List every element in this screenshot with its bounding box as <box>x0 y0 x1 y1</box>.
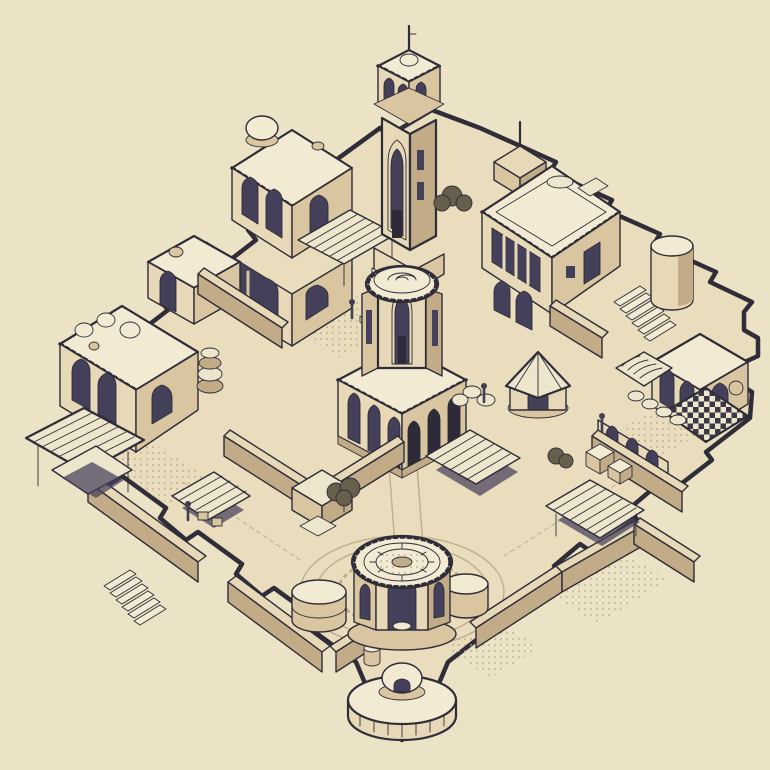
goods <box>212 518 222 526</box>
base-arch <box>428 409 440 454</box>
side-arch <box>360 584 370 620</box>
goods <box>198 512 208 520</box>
crown-dome <box>400 54 418 66</box>
slit-window <box>417 182 424 200</box>
side-arch <box>434 582 444 618</box>
fountain-pavilion <box>348 536 456 650</box>
isometric-town-map <box>0 0 770 770</box>
dome-door <box>394 679 410 692</box>
dome <box>246 116 278 140</box>
tower-door <box>392 210 402 238</box>
basin <box>393 622 411 630</box>
pavilion-door <box>398 336 406 364</box>
roof-dome <box>97 313 115 327</box>
bedroll <box>547 176 573 188</box>
base-arch <box>408 421 420 466</box>
slit-window <box>417 150 424 170</box>
roof-dome <box>75 323 93 337</box>
tree <box>434 195 450 211</box>
tree <box>456 195 472 211</box>
round-tower <box>651 236 693 310</box>
side-window <box>566 266 575 278</box>
roof-dome <box>120 322 140 338</box>
roof-pot <box>169 247 183 257</box>
base-arch <box>348 393 360 444</box>
roof-jar <box>89 342 99 350</box>
roof-pot <box>312 142 324 150</box>
drum-top <box>374 267 430 293</box>
slit <box>432 310 438 346</box>
stairs <box>104 570 166 625</box>
slit <box>366 310 372 344</box>
rosette-core <box>392 557 412 567</box>
water-cistern <box>292 580 346 632</box>
tower-top <box>651 236 693 256</box>
